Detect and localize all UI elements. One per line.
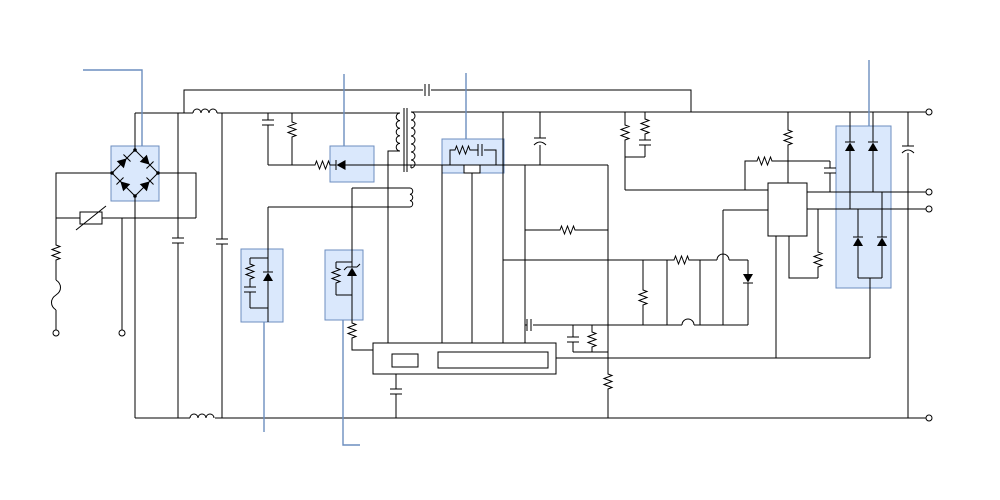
compensation-capacitor[interactable] bbox=[567, 337, 579, 342]
schematic-svg bbox=[0, 0, 1000, 500]
pullup-resistor[interactable] bbox=[755, 157, 775, 165]
regulator-capacitor[interactable] bbox=[824, 168, 836, 173]
output-electrolytic-capacitor[interactable] bbox=[902, 146, 914, 153]
bulk-capacitor[interactable] bbox=[534, 138, 546, 145]
vcc-resistor[interactable] bbox=[348, 321, 356, 341]
inrush-resistor[interactable] bbox=[52, 243, 60, 263]
pwm-controller-ic[interactable] bbox=[373, 343, 556, 374]
fuse[interactable] bbox=[52, 280, 61, 310]
highlight-output-rectifier[interactable] bbox=[836, 126, 891, 288]
emi-inductor-bottom[interactable] bbox=[190, 414, 214, 418]
y-capacitor[interactable] bbox=[425, 84, 429, 96]
loop-resistor[interactable] bbox=[558, 226, 578, 234]
snubber-switch[interactable] bbox=[464, 165, 480, 173]
highlight-rcd-clamp[interactable] bbox=[241, 249, 283, 322]
callout-bridge-rectifier[interactable] bbox=[83, 70, 142, 146]
schematic-canvas bbox=[0, 0, 1000, 500]
secondary-winding bbox=[411, 112, 415, 168]
transformer-core bbox=[404, 108, 407, 172]
sense-resistor[interactable] bbox=[604, 372, 612, 392]
auxiliary-winding bbox=[410, 188, 413, 207]
bias-resistor[interactable] bbox=[814, 250, 822, 270]
highlight-clamp-diode[interactable] bbox=[330, 146, 374, 182]
divider-capacitor[interactable] bbox=[639, 140, 651, 145]
primary-wires bbox=[268, 112, 608, 343]
input-terminal-neutral[interactable] bbox=[119, 330, 125, 336]
feedback-wires bbox=[503, 165, 870, 418]
highlight-shunt-regulator[interactable] bbox=[325, 250, 363, 320]
output-terminal-sense-2[interactable] bbox=[926, 206, 932, 212]
output-terminal-sense-1[interactable] bbox=[926, 189, 932, 195]
controller-bypass-capacitor[interactable] bbox=[390, 389, 402, 394]
feedback-diode[interactable] bbox=[743, 274, 753, 283]
circuit bbox=[52, 84, 930, 418]
divider-resistor-2[interactable] bbox=[641, 117, 649, 137]
output-terminal-return[interactable] bbox=[926, 415, 932, 421]
divider-resistor-1[interactable] bbox=[621, 123, 629, 143]
callout-lines bbox=[83, 60, 869, 445]
feedback-resistor-1[interactable] bbox=[639, 288, 647, 308]
opto-series-resistor[interactable] bbox=[672, 256, 692, 264]
flyback-transformer[interactable] bbox=[396, 108, 415, 207]
input-terminal-line[interactable] bbox=[53, 330, 59, 336]
varistor[interactable] bbox=[76, 206, 106, 230]
feedback-capacitor[interactable] bbox=[527, 319, 531, 331]
x-capacitor-1[interactable] bbox=[172, 238, 184, 243]
callout-shunt-regulator[interactable] bbox=[343, 320, 360, 445]
regulator-supply-resistor[interactable] bbox=[784, 128, 792, 148]
snubber-capacitor[interactable] bbox=[262, 120, 274, 125]
output-terminal-positive[interactable] bbox=[926, 109, 932, 115]
feedback-resistor-2[interactable] bbox=[588, 330, 596, 350]
x-capacitor-2[interactable] bbox=[216, 239, 228, 244]
snubber-resistor[interactable] bbox=[288, 120, 296, 140]
primary-winding bbox=[396, 113, 400, 151]
regulator-ic[interactable] bbox=[768, 183, 807, 236]
highlight-bridge-rectifier[interactable] bbox=[111, 146, 159, 201]
emi-inductor-top[interactable] bbox=[193, 109, 217, 113]
